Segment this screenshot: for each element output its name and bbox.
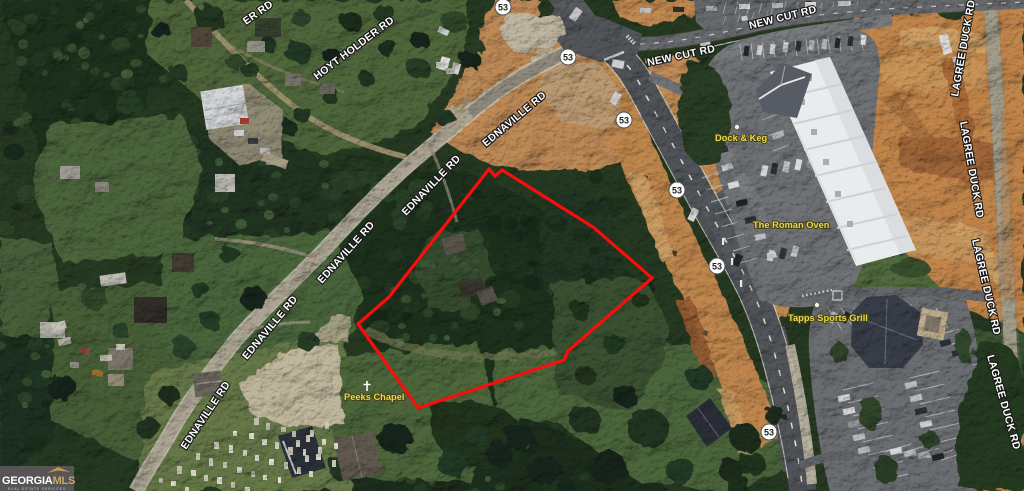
svg-text:Dock & Keg: Dock & Keg [715, 133, 767, 143]
svg-text:53: 53 [498, 3, 508, 13]
svg-text:REAL ESTATE SERVICES: REAL ESTATE SERVICES [8, 487, 66, 491]
svg-text:53: 53 [764, 428, 774, 438]
svg-text:The Roman Oven: The Roman Oven [753, 220, 830, 230]
svg-text:Peeks Chapel: Peeks Chapel [344, 392, 404, 402]
svg-text:53: 53 [712, 262, 722, 272]
svg-text:53: 53 [672, 186, 682, 196]
svg-text:GEORGIAMLS: GEORGIAMLS [2, 475, 75, 487]
svg-text:53: 53 [563, 53, 573, 63]
svg-text:53: 53 [619, 116, 629, 126]
svg-text:Tapps Sports Grill: Tapps Sports Grill [788, 313, 868, 323]
